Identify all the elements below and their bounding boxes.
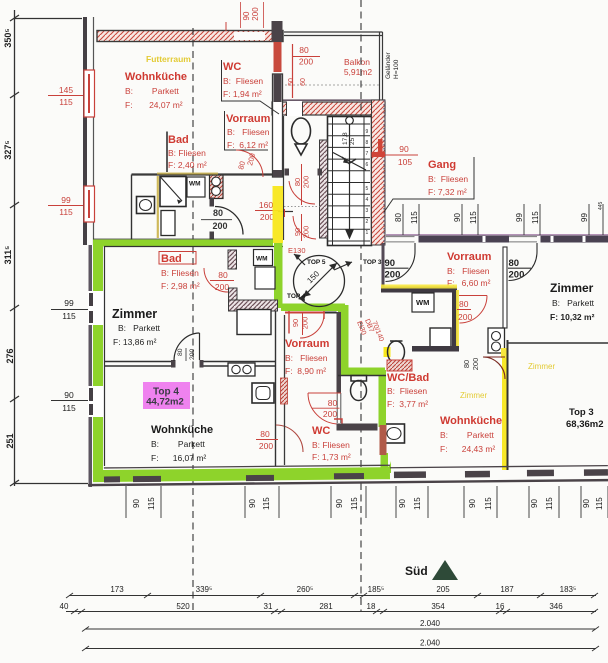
svg-text:F: 24,07 m²: F: 24,07 m² (125, 100, 183, 110)
svg-text:Bad: Bad (161, 253, 182, 265)
svg-text:WC/Bad: WC/Bad (387, 372, 429, 384)
svg-text:WM: WM (189, 181, 201, 188)
svg-text:80: 80 (177, 348, 184, 356)
svg-text:115: 115 (545, 497, 554, 510)
svg-text:F: 6,12 m²: F: 6,12 m² (227, 140, 268, 150)
svg-text:Vorraum: Vorraum (226, 113, 271, 125)
svg-text:90: 90 (248, 499, 257, 508)
svg-text:115: 115 (469, 211, 478, 224)
svg-text:F: 8,90 m²: F: 8,90 m² (285, 366, 326, 376)
svg-text:F: 16,07 m²: F: 16,07 m² (151, 453, 206, 463)
svg-text:200: 200 (323, 409, 337, 419)
svg-text:3: 3 (366, 208, 369, 214)
svg-text:90: 90 (468, 499, 477, 508)
svg-text:200: 200 (212, 221, 227, 231)
svg-text:B: Fliesen: B: Fliesen (447, 266, 490, 276)
svg-text:F: 1,94 m²: F: 1,94 m² (223, 89, 262, 99)
svg-text:90: 90 (582, 499, 591, 508)
svg-text:115: 115 (595, 497, 604, 510)
svg-text:327⁵: 327⁵ (3, 140, 13, 159)
svg-text:115: 115 (350, 497, 359, 510)
svg-text:115: 115 (59, 97, 73, 107)
svg-text:Zimmer: Zimmer (112, 307, 157, 321)
svg-text:44,72m2: 44,72m2 (146, 397, 184, 408)
svg-text:31: 31 (264, 602, 273, 611)
svg-text:WC: WC (223, 61, 241, 73)
svg-text:1: 1 (366, 230, 369, 236)
svg-text:311⁵: 311⁵ (3, 246, 13, 265)
svg-text:90: 90 (530, 499, 539, 508)
svg-text:9: 9 (366, 129, 369, 135)
svg-text:90: 90 (335, 499, 344, 508)
svg-text:200: 200 (299, 57, 313, 67)
svg-text:6: 6 (366, 162, 369, 168)
svg-text:115: 115 (262, 497, 271, 510)
svg-text:90: 90 (64, 390, 74, 400)
svg-text:Gang: Gang (428, 159, 456, 171)
svg-text:Wohnküche: Wohnküche (440, 415, 502, 427)
svg-text:B: Fliesen: B: Fliesen (285, 353, 328, 363)
svg-text:17,8: 17,8 (342, 132, 349, 145)
svg-text:115: 115 (531, 211, 540, 224)
svg-text:115: 115 (484, 497, 493, 510)
svg-text:80: 80 (509, 258, 520, 269)
svg-text:115: 115 (410, 211, 419, 224)
svg-text:160: 160 (259, 200, 273, 210)
svg-text:115: 115 (62, 311, 76, 321)
svg-text:90: 90 (132, 499, 141, 508)
svg-text:TOP 4: TOP 4 (287, 293, 306, 300)
svg-text:105: 105 (398, 157, 412, 167)
svg-text:18: 18 (367, 602, 376, 611)
svg-text:WM: WM (416, 298, 429, 307)
svg-text:260⁵: 260⁵ (297, 585, 314, 594)
svg-text:60: 60 (300, 78, 307, 86)
svg-text:80: 80 (299, 45, 309, 55)
svg-text:68,36m2: 68,36m2 (566, 419, 604, 430)
svg-text:185⁵: 185⁵ (368, 585, 385, 594)
svg-text:115: 115 (62, 403, 76, 413)
svg-text:200: 200 (509, 270, 525, 281)
svg-text:B: Fliesen: B: Fliesen (312, 440, 350, 450)
svg-text:WC: WC (312, 425, 330, 437)
svg-text:B: Fliesen: B: Fliesen (387, 386, 427, 396)
svg-text:346: 346 (549, 602, 563, 611)
svg-text:B: Parkett: B: Parkett (125, 86, 179, 96)
svg-text:E130: E130 (288, 246, 306, 255)
svg-text:F: 13,86 m²: F: 13,86 m² (113, 337, 157, 347)
svg-text:115: 115 (147, 497, 156, 510)
svg-text:Top 3: Top 3 (569, 407, 594, 418)
svg-text:F: 1,73 m²: F: 1,73 m² (312, 452, 351, 462)
svg-text:B: Parkett: B: Parkett (151, 439, 205, 449)
svg-text:B: Fliesen: B: Fliesen (227, 127, 270, 137)
svg-text:200: 200 (259, 441, 273, 451)
svg-text:25: 25 (349, 137, 356, 145)
svg-text:40: 40 (60, 602, 69, 611)
svg-text:339⁵: 339⁵ (196, 585, 213, 594)
svg-text:90: 90 (453, 213, 462, 222)
svg-text:200: 200 (458, 312, 472, 322)
svg-text:Zimmer: Zimmer (460, 391, 487, 400)
svg-text:520: 520 (176, 602, 190, 611)
svg-text:Balkon: Balkon (344, 57, 370, 67)
svg-text:2.040: 2.040 (420, 639, 441, 648)
svg-text:80: 80 (218, 270, 228, 280)
svg-text:90: 90 (398, 499, 407, 508)
svg-text:Futterraum: Futterraum (146, 54, 191, 64)
svg-text:80: 80 (394, 213, 403, 222)
svg-text:99: 99 (580, 213, 589, 222)
svg-text:90: 90 (242, 11, 251, 20)
svg-text:281: 281 (319, 602, 333, 611)
svg-text:80: 80 (328, 398, 338, 408)
svg-text:200: 200 (260, 212, 274, 222)
svg-text:B: Parkett: B: Parkett (552, 298, 595, 308)
svg-text:TOP 5: TOP 5 (307, 259, 326, 266)
svg-text:200: 200 (302, 176, 311, 189)
svg-text:200: 200 (471, 358, 480, 371)
svg-text:Vorraum: Vorraum (285, 338, 330, 350)
svg-text:200: 200 (189, 348, 196, 360)
svg-text:F: 3,77 m²: F: 3,77 m² (387, 399, 428, 409)
svg-text:50: 50 (288, 78, 295, 86)
svg-text:200: 200 (251, 7, 260, 21)
svg-text:H=100: H=100 (393, 59, 400, 79)
svg-text:5: 5 (366, 186, 369, 192)
svg-text:B: Fliesen: B: Fliesen (428, 174, 468, 184)
svg-text:80: 80 (459, 299, 469, 309)
svg-text:B: Fliesen: B: Fliesen (223, 76, 263, 86)
svg-text:2.040: 2.040 (420, 619, 441, 628)
svg-text:4: 4 (366, 197, 369, 203)
svg-text:200: 200 (301, 317, 310, 330)
svg-text:B: Parkett: B: Parkett (440, 430, 494, 440)
svg-text:F: 10,32 m²: F: 10,32 m² (550, 312, 595, 322)
svg-text:F: 2,40 m²: F: 2,40 m² (168, 160, 207, 170)
svg-text:Geländer: Geländer (385, 51, 392, 79)
svg-text:B: Fliesen: B: Fliesen (161, 268, 199, 278)
svg-text:145: 145 (59, 85, 73, 95)
svg-text:205: 205 (436, 585, 450, 594)
svg-text:WM: WM (256, 256, 268, 263)
svg-text:Wohnküche: Wohnküche (125, 71, 187, 83)
svg-text:99: 99 (61, 195, 71, 205)
svg-text:80: 80 (213, 208, 223, 218)
svg-text:276: 276 (5, 348, 15, 363)
svg-text:8: 8 (366, 140, 369, 146)
svg-text:Wohnküche: Wohnküche (151, 424, 213, 436)
svg-text:187: 187 (500, 585, 514, 594)
svg-text:90: 90 (399, 144, 409, 154)
svg-text:F: 7,32 m²: F: 7,32 m² (428, 187, 467, 197)
svg-text:80: 80 (462, 360, 471, 368)
svg-text:F: 2,98 m²: F: 2,98 m² (161, 281, 200, 291)
svg-text:7: 7 (366, 151, 369, 157)
svg-text:TOP 3: TOP 3 (363, 259, 382, 266)
svg-text:Bad: Bad (168, 134, 189, 146)
svg-text:5,91m2: 5,91m2 (344, 67, 373, 77)
svg-text:Zimmer: Zimmer (550, 281, 594, 295)
svg-text:173: 173 (110, 585, 124, 594)
svg-text:16: 16 (496, 602, 505, 611)
svg-text:Vorraum: Vorraum (447, 251, 492, 263)
svg-text:Zimmer: Zimmer (528, 362, 555, 371)
svg-text:200: 200 (215, 282, 229, 292)
svg-text:80: 80 (260, 429, 270, 439)
svg-text:350⁵: 350⁵ (3, 28, 13, 47)
svg-text:B: Fliesen: B: Fliesen (168, 148, 206, 158)
svg-text:251: 251 (5, 433, 15, 448)
svg-text:115: 115 (59, 207, 73, 217)
svg-text:90: 90 (291, 319, 300, 327)
svg-text:115: 115 (413, 497, 422, 510)
svg-text:B: Parkett: B: Parkett (118, 323, 161, 333)
svg-text:99: 99 (64, 298, 74, 308)
svg-text:354: 354 (431, 602, 445, 611)
svg-text:F: 24,43 m²: F: 24,43 m² (440, 444, 495, 454)
svg-text:99: 99 (515, 213, 524, 222)
svg-text:2: 2 (366, 219, 369, 225)
svg-text:90: 90 (385, 258, 396, 269)
svg-text:200: 200 (385, 270, 401, 281)
svg-text:Süd: Süd (405, 564, 428, 578)
svg-text:183⁵: 183⁵ (560, 585, 577, 594)
